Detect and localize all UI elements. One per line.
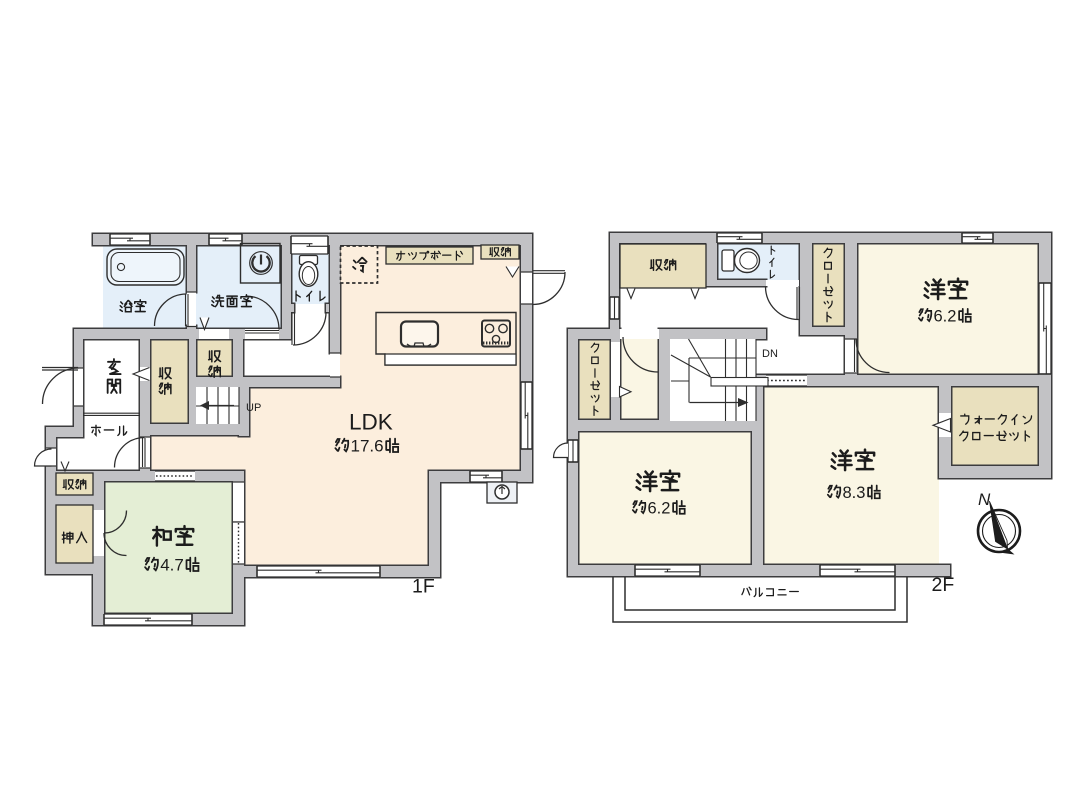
- svg-text:6.2: 6.2: [934, 307, 957, 325]
- svg-text:1F: 1F: [412, 576, 435, 598]
- svg-text:DN: DN: [762, 348, 778, 360]
- svg-text:LDK: LDK: [349, 410, 393, 435]
- svg-text:6.2: 6.2: [648, 499, 671, 517]
- svg-text:UP: UP: [246, 402, 261, 414]
- svg-text:17.6: 17.6: [351, 437, 384, 456]
- svg-text:N: N: [978, 490, 991, 509]
- svg-text:4.7: 4.7: [160, 556, 184, 575]
- svg-text:8.3: 8.3: [843, 484, 866, 502]
- svg-text:2F: 2F: [932, 574, 955, 596]
